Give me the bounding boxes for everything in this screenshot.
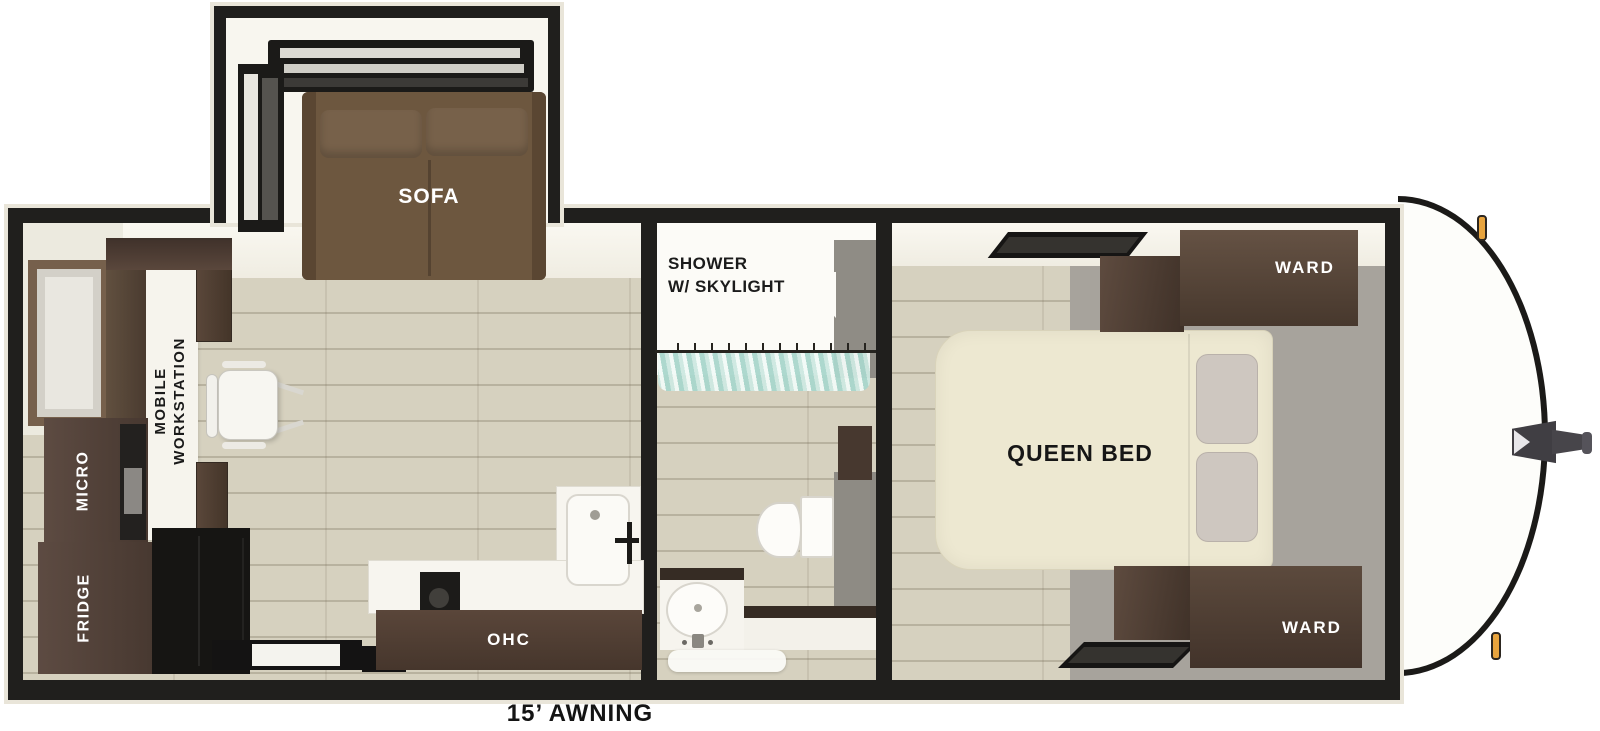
overhead-cabinet: [196, 462, 228, 532]
chair-armrest: [222, 442, 266, 449]
bath-wall-right: [876, 223, 892, 680]
ohc-label: OHC: [487, 630, 531, 650]
sofa-cushion: [320, 110, 422, 158]
office-chair: [218, 370, 278, 440]
microwave-icon: [120, 424, 146, 540]
entry-step: [252, 644, 340, 666]
window-pane: [1068, 647, 1189, 663]
burner-icon: [429, 588, 449, 608]
window-pane: [284, 78, 528, 87]
chair-armrest: [222, 361, 266, 368]
pantry-cabinet: [106, 266, 146, 428]
faucet-icon: [692, 634, 704, 648]
queen-bed-label: QUEEN BED: [980, 440, 1180, 470]
door-glass: [45, 277, 93, 409]
sofa-armrest: [302, 92, 316, 280]
wardrobe-label: WARD: [1255, 258, 1355, 278]
vanity-backsplash: [660, 568, 744, 580]
slideout-window-icon: [268, 40, 534, 92]
sofa-cushion: [426, 108, 528, 156]
mobile-workstation-label: MOBILE WORKSTATION: [151, 266, 189, 536]
mobile-workstation-desk: MOBILE WORKSTATION: [142, 262, 198, 540]
overhead-cabinet: [196, 264, 232, 342]
bath-wall-panel: [834, 472, 876, 608]
window-pane: [262, 78, 278, 220]
bedside-cabinet: [1100, 256, 1184, 332]
rv-floorplan: SOFA MOBILE WORKSTATION MICRO FRIDGE: [0, 0, 1600, 731]
wardrobe-bottom: [1190, 566, 1362, 668]
window-pane: [280, 48, 520, 58]
overhead-cabinet: [106, 238, 232, 270]
faucet-icon: [627, 522, 632, 564]
bath-mat: [668, 650, 786, 672]
sink-drain-icon: [590, 510, 600, 520]
toilet-icon: [756, 502, 802, 558]
overhead-cabinet-ohc: OHC: [376, 610, 642, 670]
window-pane: [997, 237, 1140, 253]
bath-counter: [744, 618, 876, 650]
shower-curtain: [658, 353, 870, 391]
sink-drain-icon: [694, 604, 702, 612]
sofa-label: SOFA: [354, 185, 504, 211]
window-pane: [282, 64, 524, 73]
pillow: [1196, 452, 1258, 542]
fridge-label: FRIDGE: [38, 542, 132, 674]
faucet-handle-icon: [615, 538, 639, 543]
toilet-tank-icon: [800, 496, 834, 558]
marker-light-icon: [1491, 632, 1501, 660]
faucet-handle-icon: [708, 640, 713, 645]
bedside-cabinet: [1114, 566, 1192, 640]
curtain-rings-icon: [662, 343, 868, 353]
microwave-glass: [124, 468, 142, 514]
wardrobe-top: [1180, 230, 1358, 326]
bed-seam: [1188, 334, 1190, 566]
marker-light-icon: [1477, 215, 1487, 241]
awning-label: 15’ AWNING: [430, 700, 730, 728]
micro-label: MICRO: [44, 418, 122, 544]
pillow: [1196, 354, 1258, 444]
sofa-armrest: [532, 92, 546, 280]
wardrobe-label: WARD: [1262, 618, 1362, 638]
cabinet-seam: [198, 536, 200, 666]
bedroom-window-icon: [988, 232, 1148, 258]
office-chair-backrest: [206, 374, 218, 438]
sofa-seam: [428, 160, 431, 276]
rear-door: [28, 260, 110, 426]
slideout-side-window-icon: [238, 64, 284, 232]
faucet-handle-icon: [682, 640, 687, 645]
bath-cabinet: [838, 426, 872, 480]
shower-label: SHOWER W/ SKYLIGHT: [668, 252, 838, 302]
bath-counter-edge: [744, 606, 876, 618]
window-pane: [244, 74, 258, 220]
hitch-tip-icon: [1582, 432, 1592, 454]
